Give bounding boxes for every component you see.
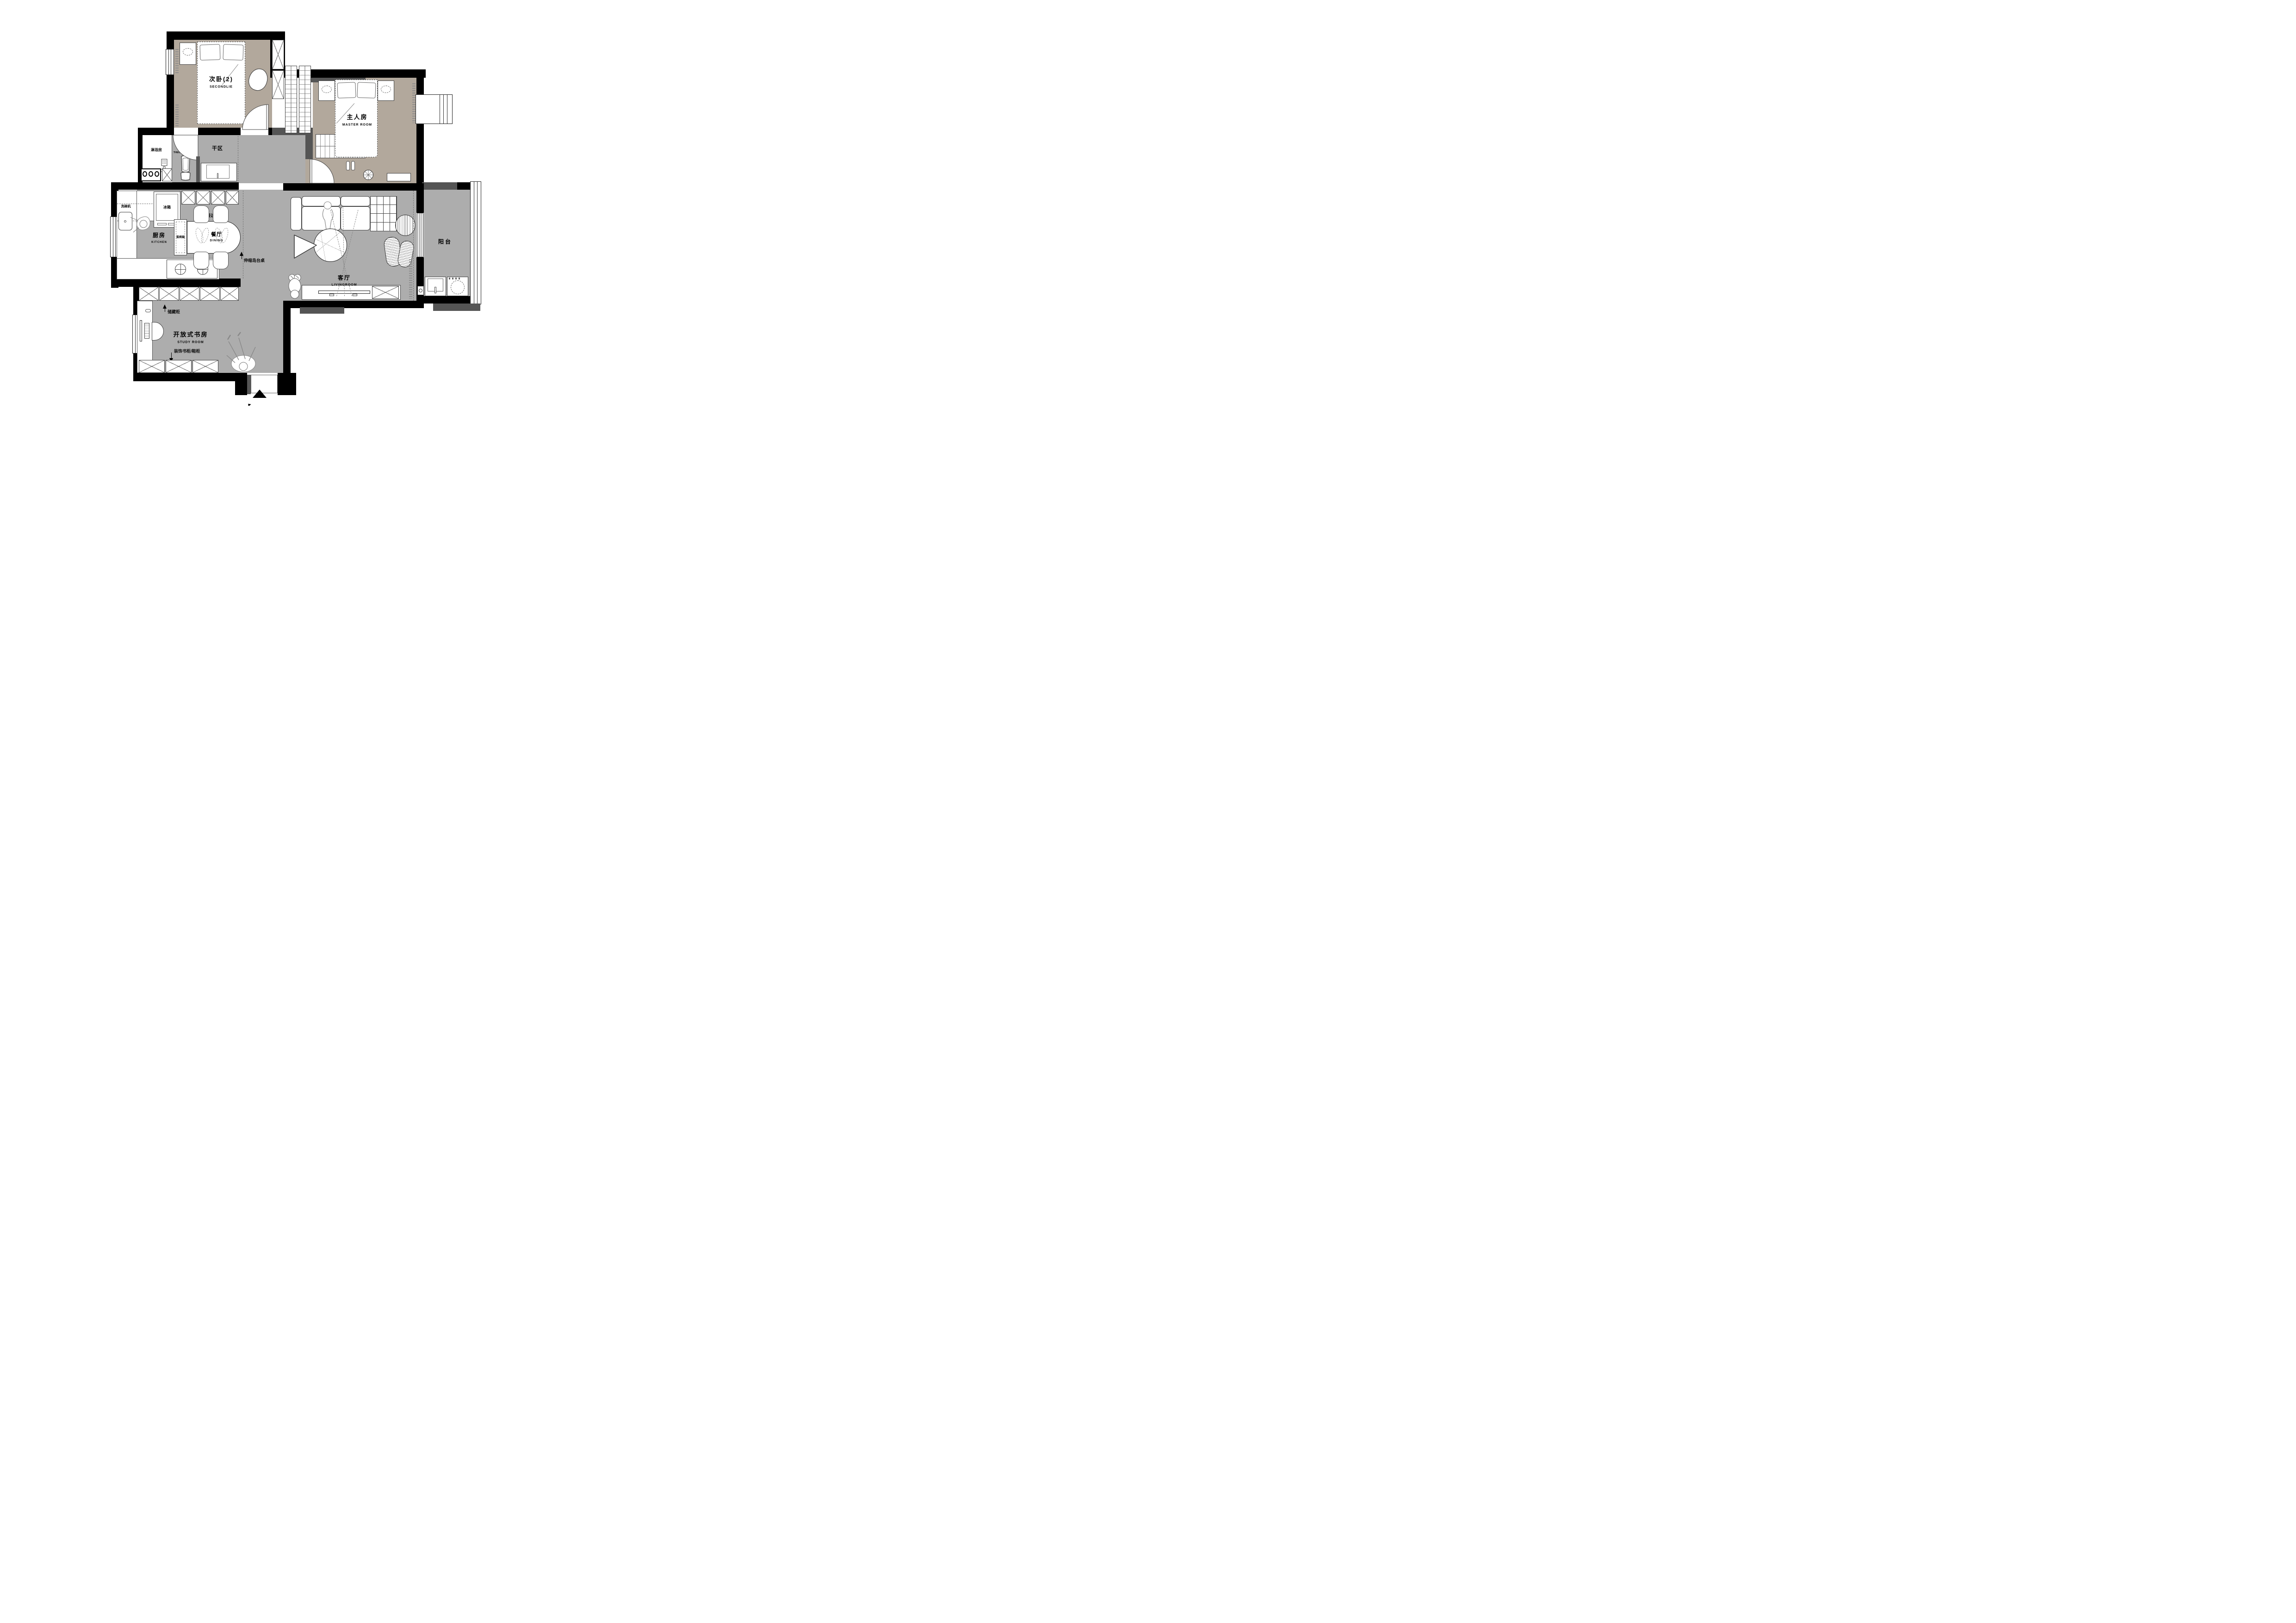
pillow-2bed-2 <box>223 44 243 61</box>
dry-corridor-dashline <box>238 136 238 181</box>
shower-room-label: 淋浴房 <box>151 148 162 153</box>
sideboard-3 <box>211 191 225 204</box>
washer-controls <box>449 278 461 279</box>
slipper-left <box>346 161 350 170</box>
washer-drum <box>451 280 465 294</box>
master-room-label-en: MASTER ROOM <box>342 124 372 127</box>
curtain-2bed-bottom <box>175 105 179 128</box>
wall-living-bottom-accent <box>300 307 344 314</box>
dishwasher-label: 洗碗机 <box>121 204 131 209</box>
stove <box>167 260 217 279</box>
second-bedroom-label-zh: 次卧(2) <box>209 74 233 83</box>
living-label-en: LIVINGROOM <box>331 284 357 287</box>
desk-monitor <box>140 320 142 341</box>
wardrobe-hanging-left <box>285 66 297 133</box>
steam-oven-label: 蒸烤箱 <box>176 235 185 239</box>
wall-toilet-dry-stub <box>196 156 200 182</box>
master-room-label-zh: 主人房 <box>347 112 367 121</box>
pillow-2bed-1 <box>199 44 220 61</box>
deco-cabinet-2 <box>166 360 192 373</box>
island-arrow-stem <box>242 254 242 259</box>
curtain-living-right <box>409 259 412 299</box>
storage-cabinet-1 <box>139 287 159 301</box>
floor-drain-circle <box>419 289 422 292</box>
wall-balcony-top-corner <box>457 182 470 190</box>
bay-window-glass-lines <box>440 95 451 124</box>
storage-arrow-stem <box>165 306 166 312</box>
desk-keyboard <box>144 323 149 339</box>
entry-arrow-small-icon <box>247 403 251 406</box>
dry-area-label: 干区 <box>212 144 223 152</box>
wardrobe-hanging-right <box>299 66 311 133</box>
bench-master <box>387 173 411 181</box>
kitchen-label-zh: 厨房 <box>153 231 166 239</box>
dining-chair-1 <box>193 205 209 223</box>
living-label-zh: 客厅 <box>338 274 351 282</box>
curtain-master-right <box>412 83 416 123</box>
sideboard-4 <box>226 191 239 204</box>
deco-cabinet-label: 装饰书柜/鞋柜 <box>174 348 200 354</box>
wall-living-balcony-a <box>416 183 424 213</box>
storage-cabinet-4 <box>200 287 220 301</box>
deco-cabinet-1 <box>139 360 165 373</box>
wall-living-top <box>283 183 424 191</box>
balcony-sliding-door <box>417 213 423 257</box>
wall-master-door-jamb <box>305 135 313 159</box>
floor-plan: 次卧(2) SECONDLIE 主人房 MASTER ROOM 淋浴房 <box>0 0 574 406</box>
pillow-master-1 <box>337 82 356 98</box>
balcony-faucet <box>434 287 436 293</box>
basin-circle-3 <box>155 171 159 177</box>
wall-study-bottom <box>133 373 241 381</box>
dining-label-en: DINING <box>210 239 223 242</box>
person-cooking <box>132 214 153 238</box>
fridge-label: 冰箱 <box>163 205 171 210</box>
vanity-faucet <box>217 173 218 179</box>
closet-cabinet-top-2 <box>272 70 284 99</box>
storage-cabinet-2 <box>159 287 179 301</box>
fridge-foot-1 <box>157 223 167 225</box>
study-label-zh: 开放式书房 <box>173 330 208 339</box>
door-arc-bath <box>173 135 198 160</box>
lamp-2bed <box>183 48 193 56</box>
door-arc-master <box>310 159 334 183</box>
sideboard-2 <box>196 191 210 204</box>
lamp-master-left <box>322 86 332 93</box>
storage-cabinet-label: 储藏柜 <box>168 309 180 315</box>
wall-entry-left <box>235 373 247 395</box>
sofa-armrest <box>291 197 302 230</box>
wall-master-right-a <box>416 69 424 94</box>
wall-master-right-b <box>416 124 424 183</box>
lamp-master-right <box>381 86 391 93</box>
sideboard-1 <box>181 191 195 204</box>
stove-burner-1 <box>175 264 186 275</box>
sofa-ottoman-grid <box>370 196 397 231</box>
wall-balcony-bottom <box>416 296 470 304</box>
ball-chair <box>395 215 416 236</box>
storage-cabinet-5 <box>220 287 239 301</box>
pillow-master-2 <box>357 82 376 98</box>
wall-2bed-left-b <box>167 75 174 135</box>
tv-stand-left <box>329 294 334 296</box>
kitchen-sink-drain <box>124 220 126 223</box>
curtain-2bed-top <box>175 49 179 74</box>
tv-side-cabinet <box>372 286 399 299</box>
study-label-en: STUDY ROOM <box>177 341 204 344</box>
triangle-chair <box>292 232 318 261</box>
wall-2bed-left-a <box>167 31 174 49</box>
entry-arrow-icon <box>253 390 267 398</box>
balcony-label: 阳台 <box>438 238 452 246</box>
wall-corridor-right <box>283 301 291 381</box>
living-balcony-dashline <box>413 191 414 301</box>
dining-chair-4 <box>213 252 229 269</box>
wall-kitchen-top <box>111 182 239 190</box>
sofa-back-2 <box>341 196 370 206</box>
wall-balcony-bottom-accent <box>433 304 480 311</box>
dining-chair-2 <box>213 205 229 223</box>
wall-bath-top-a <box>138 128 174 135</box>
wall-2bed-top <box>167 31 285 40</box>
window-2bed-left <box>166 49 174 75</box>
dining-label-zh: 餐厅 <box>211 230 222 238</box>
kitchen-label-en: KITCHEN <box>151 241 167 244</box>
dining-chair-3 <box>193 252 209 269</box>
wall-bath-top-b <box>198 128 241 135</box>
wall-entry-accent <box>247 375 251 394</box>
desk-mouse <box>145 309 151 312</box>
slipper-right <box>351 161 355 170</box>
tv-stand-right <box>353 294 357 296</box>
plant-figure <box>287 273 303 300</box>
wall-kitchen-bottom <box>111 279 241 287</box>
deco-cabinet-3 <box>192 360 218 373</box>
basin-circle-2 <box>149 171 153 177</box>
basin-circle-1 <box>143 171 147 177</box>
door-arc-second-bedroom <box>242 105 268 130</box>
wall-balcony-top-accent <box>422 182 458 190</box>
storage-cabinet-3 <box>180 287 199 301</box>
island-table-label: 伸缩岛台桌 <box>244 257 265 263</box>
bath-cabinet <box>162 168 172 181</box>
window-balcony-right <box>470 181 481 304</box>
closet-cabinet-top-1 <box>272 40 284 69</box>
second-bedroom-label-en: SECONDLIE <box>210 86 233 89</box>
dining-corridor-dashline <box>243 191 243 279</box>
flower-stool <box>363 169 374 180</box>
person-lounging-study <box>221 331 263 374</box>
